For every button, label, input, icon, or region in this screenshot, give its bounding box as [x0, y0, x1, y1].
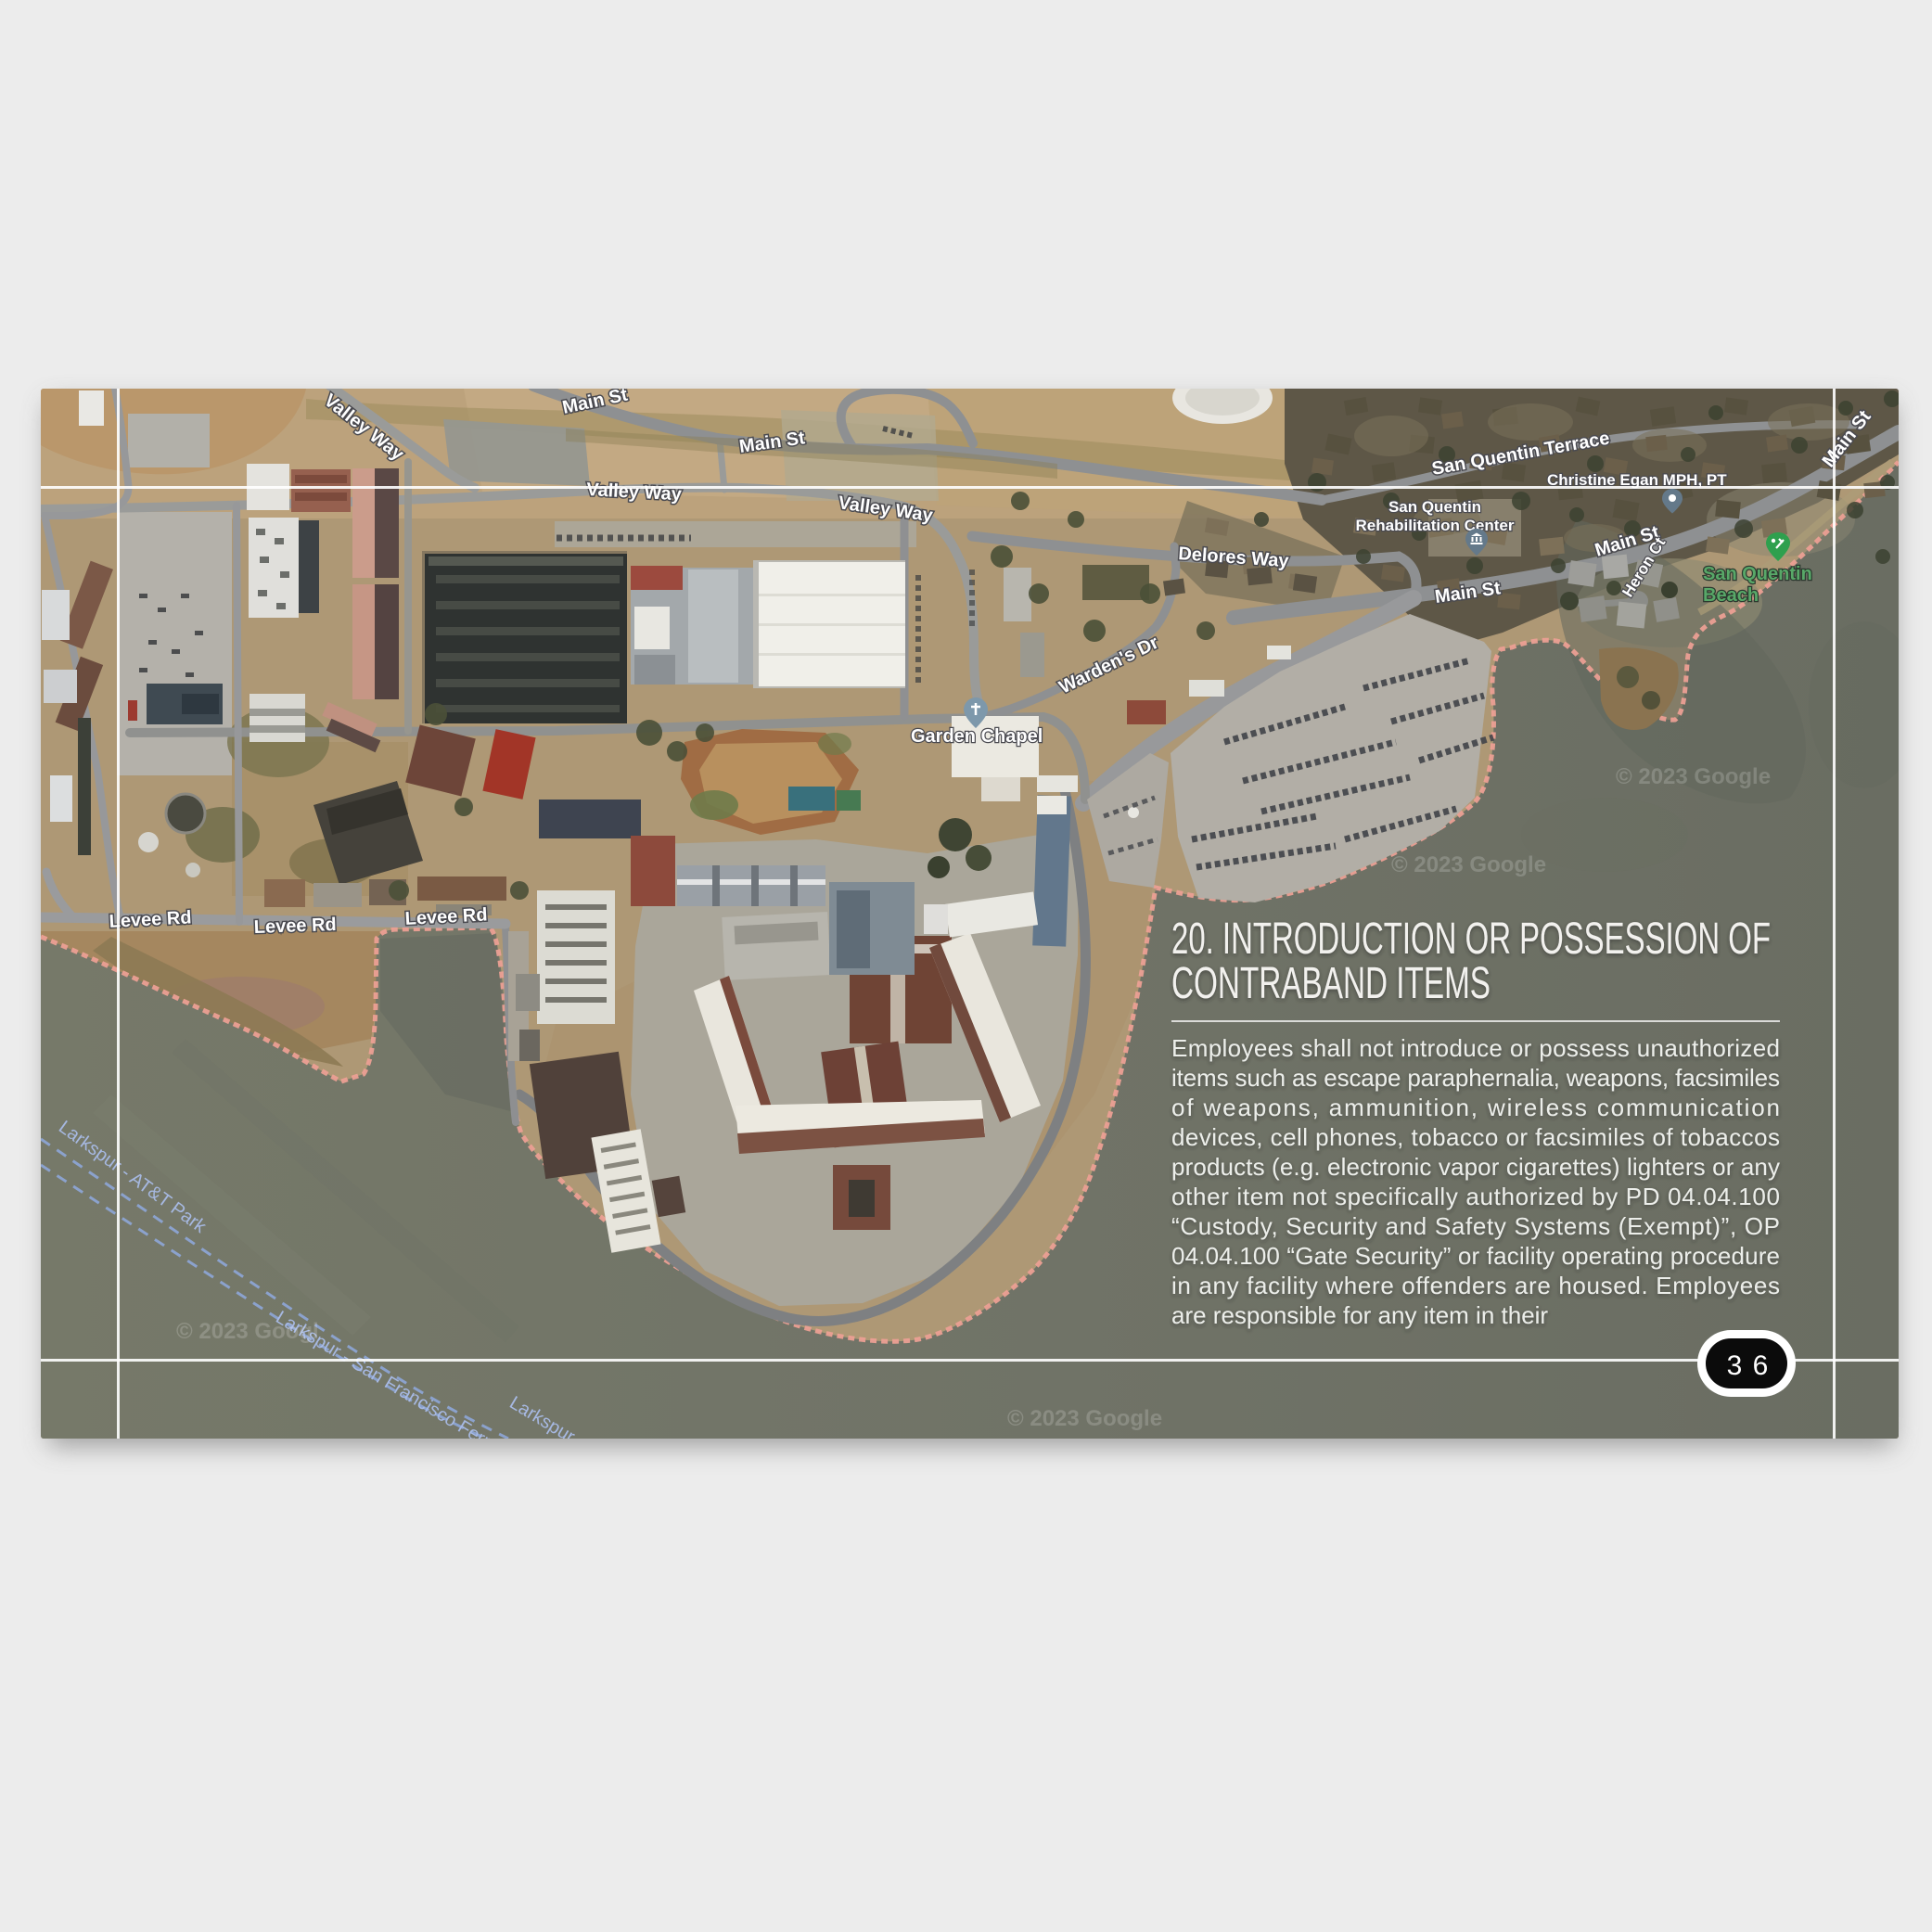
svg-text:© 2023 Google: © 2023 Google	[1391, 852, 1546, 877]
svg-text:“Custody, Security and Safety: “Custody, Security and Safety Systems (E…	[1171, 1212, 1780, 1240]
svg-text:Rehabilitation Center: Rehabilitation Center	[1356, 517, 1515, 534]
svg-text:© 2023 Google: © 2023 Google	[1616, 764, 1771, 789]
svg-text:04.04.100 “Gate Security” or f: 04.04.100 “Gate Security” or facility op…	[1171, 1242, 1780, 1270]
svg-text:in any facility where offender: in any facility where offenders are hous…	[1171, 1272, 1780, 1299]
svg-text:San Quentin: San Quentin	[1388, 498, 1481, 516]
svg-text:© 2023 Google: © 2023 Google	[1007, 1406, 1162, 1431]
svg-text:Garden Chapel: Garden Chapel	[911, 726, 1043, 747]
svg-text:Levee Rd: Levee Rd	[404, 904, 488, 929]
svg-text:Levee Rd: Levee Rd	[109, 907, 192, 932]
svg-text:products (e.g. electronic vapo: products (e.g. electronic vapor cigarett…	[1171, 1153, 1780, 1181]
svg-text:of weapons, ammunition, wirele: of weapons, ammunition, wireless communi…	[1171, 1094, 1780, 1121]
svg-text:© 2023 Googl: © 2023 Googl	[176, 1319, 319, 1344]
svg-text:Levee Rd: Levee Rd	[253, 915, 337, 938]
svg-text:20. INTRODUCTION OR POSSESSION: 20. INTRODUCTION OR POSSESSION OF	[1171, 915, 1771, 964]
svg-text:devices, cell phones, tobacco: devices, cell phones, tobacco or facsimi…	[1171, 1123, 1780, 1151]
svg-text:other item not specifically au: other item not specifically authorized b…	[1171, 1183, 1780, 1210]
svg-text:are responsible for any item i: are responsible for any item in their	[1171, 1301, 1548, 1329]
svg-text:3: 3	[1727, 1350, 1743, 1381]
svg-text:San Quentin: San Quentin	[1703, 564, 1812, 584]
svg-text:Employees shall not introduce: Employees shall not introduce or possess…	[1171, 1034, 1780, 1062]
svg-text:items such as escape paraphern: items such as escape paraphernalia, weap…	[1171, 1064, 1780, 1092]
svg-text:6: 6	[1753, 1350, 1769, 1381]
svg-text:Beach: Beach	[1703, 585, 1759, 606]
svg-text:CONTRABAND ITEMS: CONTRABAND ITEMS	[1171, 959, 1491, 1008]
